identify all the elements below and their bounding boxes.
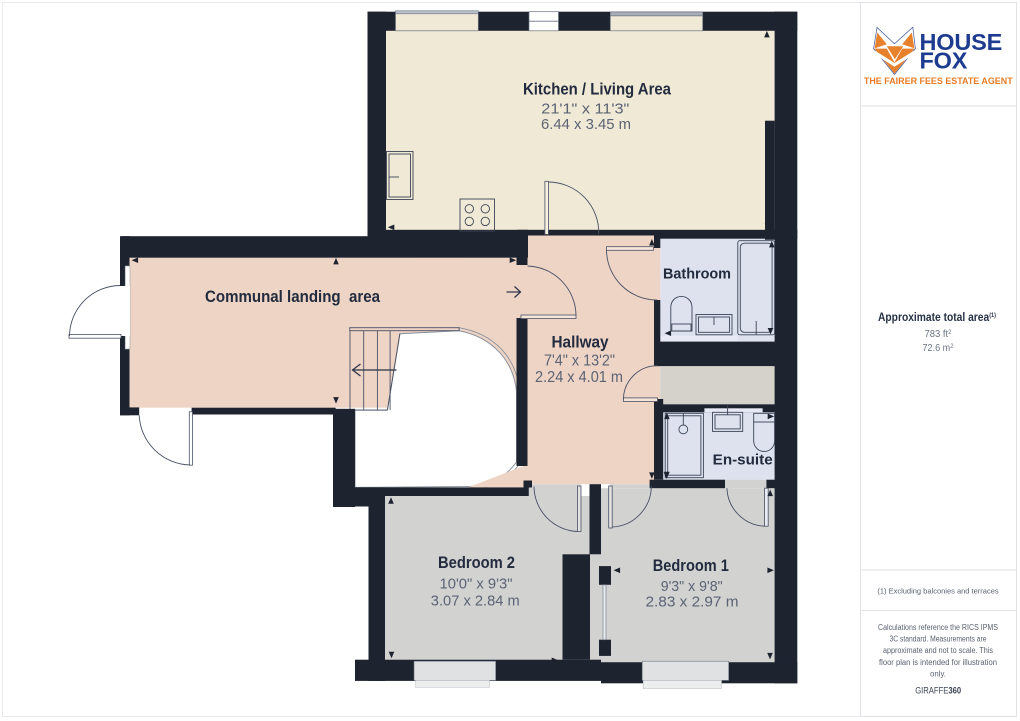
svg-text:7'4" x 13'2": 7'4" x 13'2" bbox=[544, 353, 615, 370]
svg-text:Bathroom: Bathroom bbox=[663, 267, 731, 283]
svg-text:72.6 m2: 72.6 m2 bbox=[923, 343, 954, 354]
svg-text:approximate and not to scale.: approximate and not to scale. This bbox=[883, 646, 993, 655]
svg-text:Hallway: Hallway bbox=[552, 333, 609, 352]
svg-text:2.24 x 4.01 m: 2.24 x 4.01 m bbox=[535, 369, 623, 386]
svg-text:THE FAIRER FEES ESTATE AGENT: THE FAIRER FEES ESTATE AGENT bbox=[864, 76, 1013, 86]
svg-text:10'0" x 9'3": 10'0" x 9'3" bbox=[440, 576, 513, 593]
svg-text:(1) Excluding balconies and te: (1) Excluding balconies and terraces bbox=[877, 587, 999, 596]
svg-text:Bedroom 1: Bedroom 1 bbox=[653, 557, 729, 575]
svg-text:3C standard. Measurements are: 3C standard. Measurements are bbox=[890, 635, 987, 644]
svg-text:En-suite: En-suite bbox=[713, 453, 773, 469]
svg-text:Communal landing area: Communal landing area bbox=[205, 288, 381, 306]
svg-text:6.44 x 3.45 m: 6.44 x 3.45 m bbox=[541, 116, 631, 133]
svg-text:9'3" x 9'8": 9'3" x 9'8" bbox=[661, 578, 723, 595]
svg-text:3.07 x 2.84 m: 3.07 x 2.84 m bbox=[431, 593, 520, 610]
svg-text:floor plan is intended for ill: floor plan is intended for illustration bbox=[879, 658, 997, 667]
svg-text:FOX: FOX bbox=[920, 48, 968, 74]
svg-text:Kitchen / Living Area: Kitchen / Living Area bbox=[523, 80, 671, 99]
svg-text:Approximate total area(1): Approximate total area(1) bbox=[878, 310, 996, 324]
svg-text:Bedroom 2: Bedroom 2 bbox=[438, 554, 515, 572]
svg-text:2.83 x 2.97 m: 2.83 x 2.97 m bbox=[646, 594, 739, 611]
svg-text:783 ft2: 783 ft2 bbox=[925, 329, 952, 340]
svg-text:21'1" x 11'3": 21'1" x 11'3" bbox=[541, 101, 629, 118]
svg-text:Calculations reference the RIC: Calculations reference the RICS IPMS bbox=[878, 623, 998, 632]
svg-text:GIRAFFE360: GIRAFFE360 bbox=[915, 686, 961, 696]
svg-text:only.: only. bbox=[930, 669, 946, 678]
